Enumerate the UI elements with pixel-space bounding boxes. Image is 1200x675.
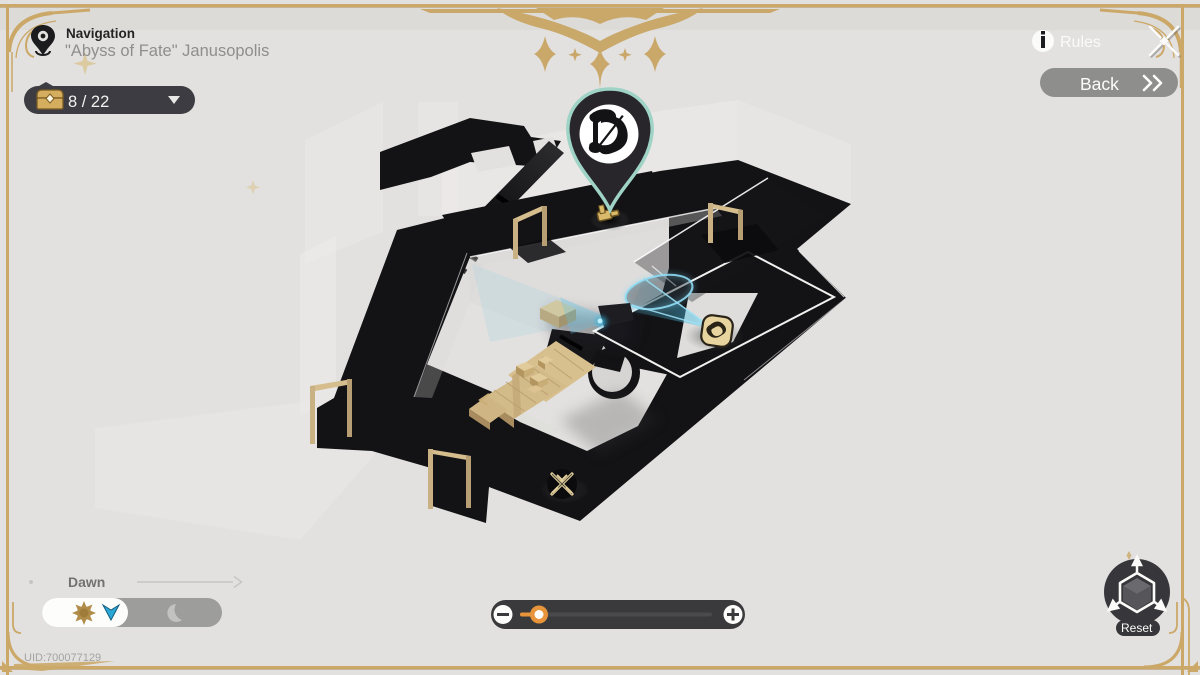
svg-text:Navigation: Navigation (66, 26, 135, 41)
svg-text:8 / 22: 8 / 22 (68, 93, 109, 111)
svg-text:UID:700077129: UID:700077129 (24, 652, 101, 664)
svg-text:"Abyss of Fate" Janusopolis: "Abyss of Fate" Janusopolis (65, 42, 269, 60)
svg-text:Back: Back (1080, 74, 1119, 94)
svg-text:Dawn: Dawn (68, 574, 105, 590)
svg-text:Rules: Rules (1060, 34, 1101, 51)
svg-text:Reset: Reset (1121, 621, 1153, 635)
